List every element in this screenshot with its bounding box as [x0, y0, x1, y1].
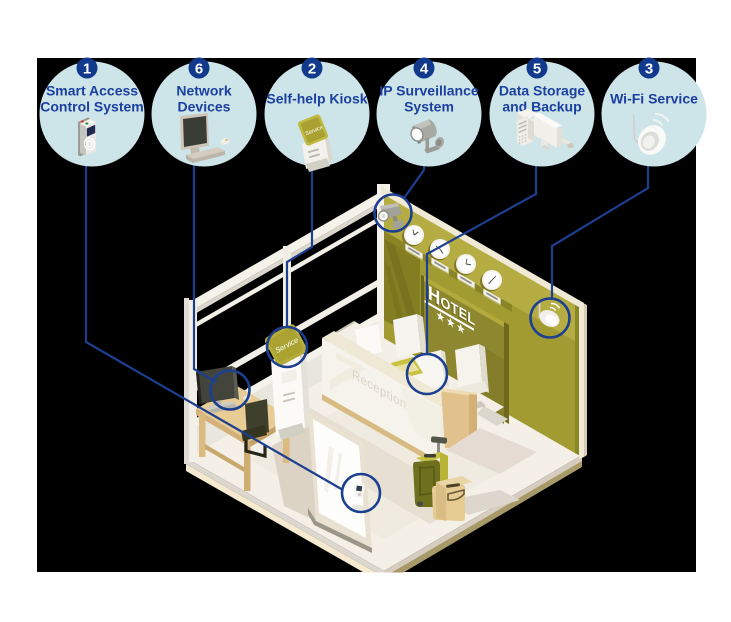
svg-text:3: 3	[645, 61, 653, 78]
svg-text:and Backup: and Backup	[502, 99, 581, 115]
svg-text:System: System	[404, 99, 454, 115]
svg-text:IP Surveillance: IP Surveillance	[379, 83, 479, 99]
svg-text:1: 1	[83, 61, 91, 78]
svg-text:Network: Network	[176, 83, 231, 99]
svg-text:Smart Access: Smart Access	[46, 83, 138, 99]
svg-text:6: 6	[195, 61, 203, 78]
svg-text:2: 2	[308, 61, 316, 78]
svg-text:4: 4	[420, 61, 429, 78]
svg-text:Data Storage: Data Storage	[499, 83, 586, 99]
svg-text:Devices: Devices	[178, 99, 231, 115]
svg-text:Self-help Kiosk: Self-help Kiosk	[266, 91, 367, 107]
svg-text:5: 5	[533, 61, 541, 78]
svg-text:Wi-Fi Service: Wi-Fi Service	[610, 91, 698, 107]
svg-text:Control System: Control System	[40, 99, 143, 115]
